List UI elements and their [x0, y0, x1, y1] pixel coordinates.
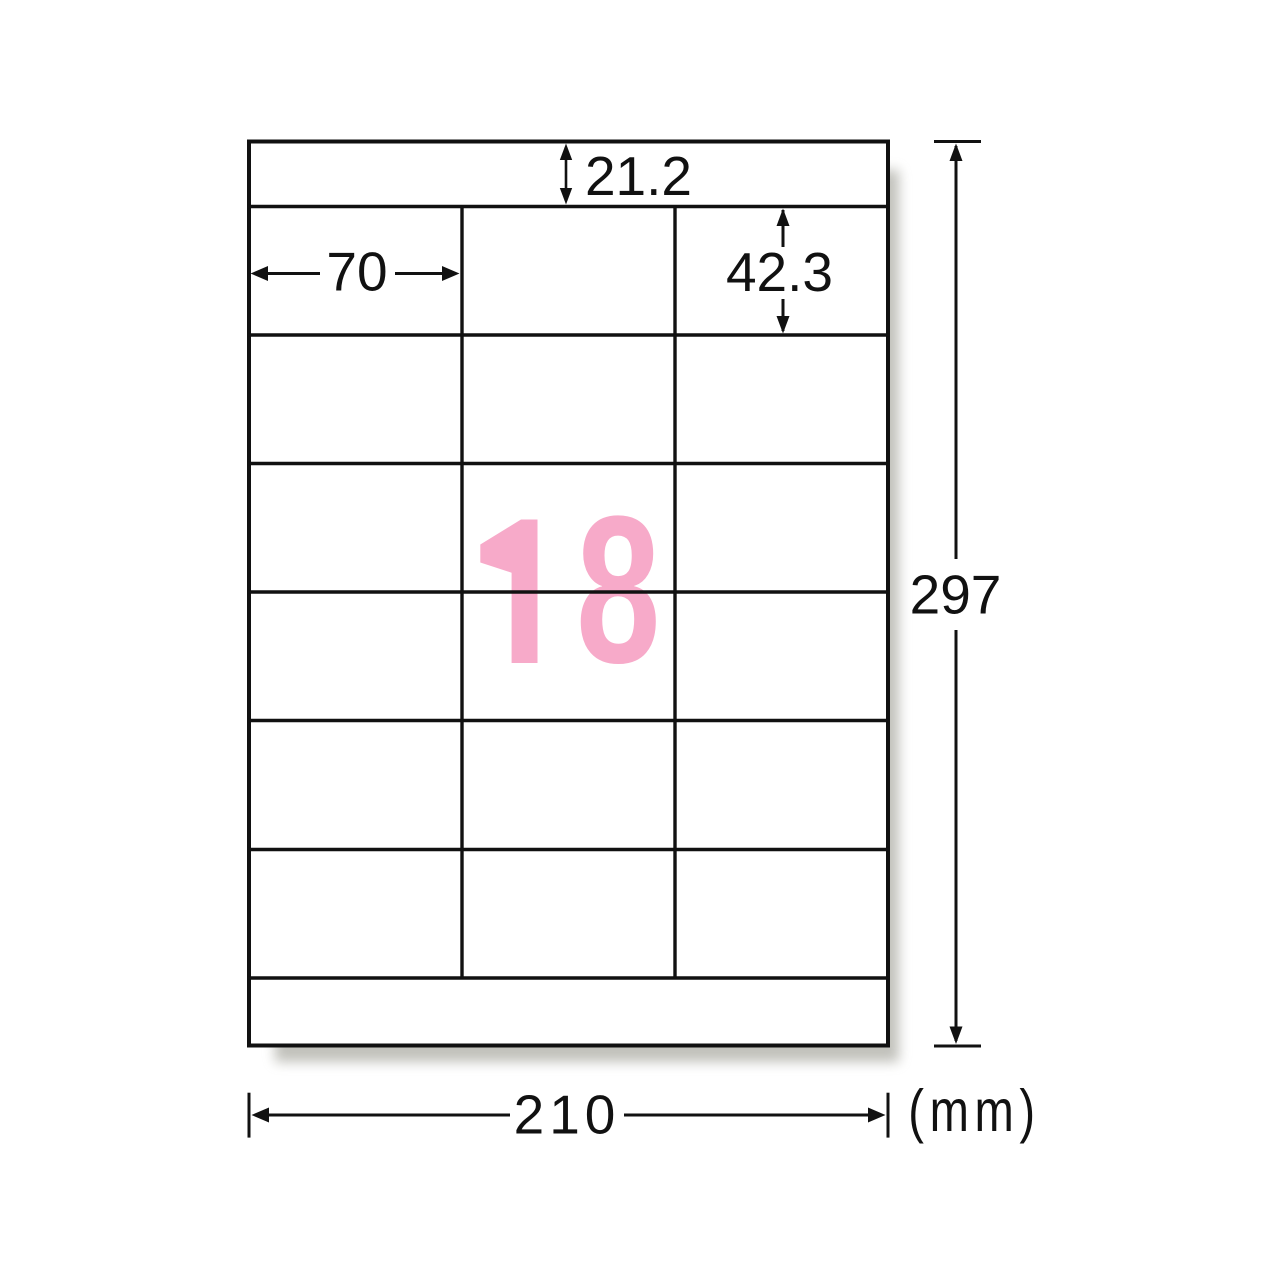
svg-text:42.3: 42.3: [726, 241, 833, 303]
svg-text:21.2: 21.2: [585, 145, 692, 207]
svg-text:8: 8: [576, 472, 661, 707]
svg-text:210: 210: [514, 1084, 621, 1146]
svg-text:(mm): (mm): [908, 1079, 1040, 1144]
svg-text:297: 297: [910, 564, 1002, 626]
svg-text:70: 70: [326, 241, 387, 303]
